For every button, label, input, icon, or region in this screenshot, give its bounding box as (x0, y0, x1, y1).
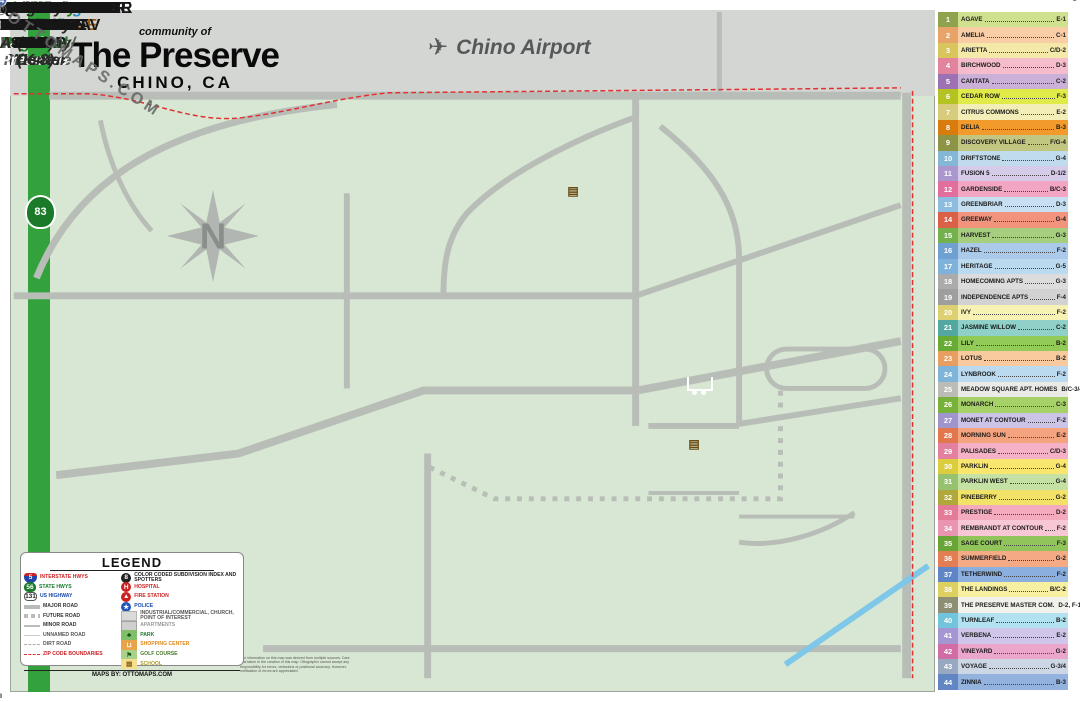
index-row: 11 FUSION 5 D-1/2 (938, 166, 1068, 181)
road-w-preserve-loop (443, 116, 637, 295)
index-row: 34 REMBRANDT AT CONTOUR F-2 (938, 520, 1068, 535)
index-leader (1008, 437, 1055, 438)
index-gridref: G-2 (1056, 494, 1068, 501)
legend-row: ▲FIRE STATION (121, 592, 240, 602)
index-row: 10 DRIFTSTONE G-4 (938, 151, 1068, 166)
index-gridref: E-1 (1056, 16, 1068, 23)
legend-row: ▤SCHOOL (121, 659, 240, 669)
index-number: 29 (938, 443, 958, 458)
legend-label: SHOPPING CENTER (140, 642, 189, 647)
legend-icon (121, 611, 137, 621)
index-number: 16 (938, 243, 958, 258)
index-number: 30 (938, 459, 958, 474)
legend-title: LEGEND (50, 555, 214, 571)
index-gridref: C/D-2 (1050, 47, 1068, 54)
index-name: DISCOVERY VILLAGE (958, 139, 1026, 146)
index-gridref: D-2, F-1 (1058, 602, 1080, 609)
index-row: 17 HERITAGE G-5 (938, 259, 1068, 274)
road-bickmore-diagonal (636, 205, 901, 296)
map-subtitle: CHINO, CA (60, 73, 290, 93)
index-number: 11 (938, 166, 958, 181)
legend-row: 8COLOR CODED SUBDIVISION INDEX AND SPOTT… (121, 573, 240, 583)
legend-icon: ⊔ (121, 640, 137, 650)
index-gridref: B/C-3/4 (1061, 386, 1080, 393)
index-name: LILY (958, 340, 974, 347)
index-row: 13 GREENBRIAR D-3 (938, 197, 1068, 212)
index-leader (994, 221, 1054, 222)
legend-icon: ♣ (121, 630, 137, 640)
index-number: 9 (938, 135, 958, 150)
map-poster: community of The Preserve CHINO, CA ✈ Ch… (0, 0, 1080, 702)
index-leader (1008, 560, 1053, 561)
index-number: 4 (938, 58, 958, 73)
index-gridref: C/D-3 (1050, 448, 1068, 455)
index-name: PRESTIGE (958, 509, 992, 516)
index-row: 2 AMELIA C-1 (938, 27, 1068, 42)
index-gridref: G-3 (1056, 232, 1068, 239)
legend-icon: ★ (121, 602, 131, 612)
index-gridref: F-2 (1057, 571, 1068, 578)
index-leader (994, 514, 1054, 515)
index-row: 35 SAGE COURT F-3 (938, 536, 1068, 551)
index-gridref: G-5 (1056, 263, 1068, 270)
book-icon: ▤ (567, 184, 578, 198)
index-number: 18 (938, 274, 958, 289)
index-name: MONET AT CONTOUR (958, 417, 1026, 424)
index-number: 8 (938, 120, 958, 135)
index-row: 5 CANTATA C-2 (938, 74, 1068, 89)
index-name: TURNLEAF (958, 617, 994, 624)
index-number: 19 (938, 289, 958, 304)
index-leader (989, 52, 1047, 53)
legend-label: GOLF COURSE (140, 652, 177, 657)
index-gridref: C-1 (1056, 32, 1068, 39)
index-row: 7 CITRUS COMMONS E-2 (938, 104, 1068, 119)
index-leader (1004, 191, 1048, 192)
shopping-cart-icon (687, 377, 713, 391)
road-market-st (648, 398, 900, 426)
index-number: 31 (938, 474, 958, 489)
index-gridref: G-3 (1056, 278, 1068, 285)
index-gridref: G-3/4 (1051, 663, 1068, 670)
index-gridref: F-2 (1057, 417, 1068, 424)
index-number: 22 (938, 336, 958, 351)
index-leader (995, 268, 1054, 269)
map-title: The Preserve (60, 38, 290, 73)
index-row: 27 MONET AT CONTOUR F-2 (938, 413, 1068, 428)
index-leader (985, 21, 1055, 22)
index-leader (1002, 160, 1053, 161)
index-row: 29 PALISADES C/D-3 (938, 443, 1068, 458)
index-name: CANTATA (958, 78, 990, 85)
legend-row: 56STATE HWYS (24, 583, 121, 593)
state-highway-83-shield: 83 (25, 195, 56, 229)
index-gridref: G-4 (1056, 478, 1068, 485)
index-leader (984, 684, 1054, 685)
legend-row: ♣PARK (121, 631, 240, 641)
index-gridref: B/C-2 (1050, 586, 1068, 593)
legend-label: MAJOR ROAD (43, 604, 78, 609)
legend-row: 5INTERSTATE HWYS (24, 573, 121, 583)
index-gridref: C-2 (1056, 324, 1068, 331)
index-gridref: G-4 (1056, 216, 1068, 223)
index-number: 12 (938, 181, 958, 196)
index-row: 20 IVY F-2 (938, 305, 1068, 320)
index-row: 30 PARKLIN G-4 (938, 459, 1068, 474)
index-gridref: D-3 (1056, 201, 1068, 208)
index-name: VOYAGE (958, 663, 987, 670)
index-gridref: E-2 (1056, 109, 1068, 116)
index-name: THE LANDINGS (958, 586, 1007, 593)
index-leader (1010, 483, 1054, 484)
legend-label: US HIGHWAY (40, 594, 72, 599)
legend-row: INDUSTRIAL/COMMERCIAL, CHURCH, POINT OF … (121, 611, 240, 621)
index-row: 12 GARDENSIDE B/C-3 (938, 181, 1068, 196)
index-name: HARVEST (958, 232, 990, 239)
grid-number: 5 (1073, 0, 1076, 3)
index-name: CITRUS COMMONS (958, 109, 1019, 116)
index-number: 5 (938, 74, 958, 89)
index-gridref: B-2 (1056, 617, 1068, 624)
index-row: 1 AGAVE E-1 (938, 12, 1068, 27)
road-future (430, 385, 781, 499)
index-name: INDEPENDENCE APTS (958, 294, 1028, 301)
index-number: 6 (938, 89, 958, 104)
index-gridref: G-2 (1056, 648, 1068, 655)
road-quality-wy (100, 120, 151, 230)
index-name: ARIETTA (958, 47, 987, 54)
index-number: 37 (938, 567, 958, 582)
index-row: 22 LILY B-2 (938, 336, 1068, 351)
index-leader (999, 499, 1054, 500)
legend-row: ⊔SHOPPING CENTER (121, 640, 240, 650)
legend-label: FIRE STATION (134, 594, 169, 599)
index-leader (989, 668, 1049, 669)
index-row: 21 JASMINE WILLOW C-2 (938, 320, 1068, 335)
index-number: 14 (938, 212, 958, 227)
legend-label: DIRT ROAD (43, 642, 71, 647)
index-gridref: F/G-4 (1050, 139, 1068, 146)
index-leader (1003, 67, 1054, 68)
legend-left-column: 5INTERSTATE HWYS56STATE HWYS131US HIGHWA… (24, 573, 121, 669)
maps-by-credit: MAPS BY: OTTOMAPS.COM (24, 670, 240, 678)
index-row: 44 ZINNIA B-3 (938, 674, 1068, 689)
index-row: 8 DELIA B-3 (938, 120, 1068, 135)
index-gridref: C-2 (1056, 78, 1068, 85)
index-gridref: F-2 (1057, 525, 1068, 532)
index-name: TETHERWIND (958, 571, 1002, 578)
index-gridref: B-2 (1056, 340, 1068, 347)
index-row: 41 VERBENA E-2 (938, 628, 1068, 643)
index-leader (998, 376, 1055, 377)
legend-icon: ▤ (121, 659, 137, 669)
legend-right-column: 8COLOR CODED SUBDIVISION INDEX AND SPOTT… (121, 573, 240, 669)
index-row: 15 HARVEST G-3 (938, 228, 1068, 243)
map-title-block: community of The Preserve CHINO, CA (60, 26, 290, 93)
index-row: 40 TURNLEAF B-2 (938, 613, 1068, 628)
index-number: 41 (938, 628, 958, 643)
index-row: 19 INDEPENDENCE APTS F-4 (938, 289, 1068, 304)
index-row: 31 PARKLIN WEST G-4 (938, 474, 1068, 489)
index-number: 42 (938, 644, 958, 659)
index-row: 18 HOMECOMING APTS G-3 (938, 274, 1068, 289)
index-number: 34 (938, 520, 958, 535)
index-number: 40 (938, 613, 958, 628)
index-leader (984, 360, 1054, 361)
index-number: 3 (938, 43, 958, 58)
index-number: 44 (938, 674, 958, 689)
airplane-icon: ✈ (428, 33, 448, 62)
legend-label: SCHOOL (140, 662, 162, 667)
index-row: 39 THE PRESERVE MASTER COM. D-2, F-1 (938, 597, 1068, 612)
index-gridref: F-3 (1057, 93, 1068, 100)
index-leader (992, 83, 1054, 84)
index-leader (1045, 530, 1055, 531)
index-name: HOMECOMING APTS (958, 278, 1023, 285)
legend-row: FUTURE ROAD (24, 611, 121, 621)
index-gridref: D-1/2 (1051, 170, 1068, 177)
compass-north-letter: N (200, 215, 226, 256)
index-leader (1021, 114, 1055, 115)
legend-icon (121, 621, 137, 631)
index-number: 28 (938, 428, 958, 443)
index-name: MEADOW SQUARE APT. HOMES (958, 386, 1057, 393)
legend-label: ZIP CODE BOUNDARIES (43, 652, 103, 657)
legend-icon: ▲ (121, 592, 131, 602)
index-number: 24 (938, 366, 958, 381)
legend-icon (24, 654, 40, 655)
index-row: 4 BIRCHWOOD D-3 (938, 58, 1068, 73)
index-number: 2 (938, 27, 958, 42)
index-row: 25 MEADOW SQUARE APT. HOMES B/C-3/4 (938, 382, 1068, 397)
index-leader (1028, 144, 1049, 145)
index-row: 33 PRESTIGE D-2 (938, 505, 1068, 520)
index-row: 3 ARIETTA C/D-2 (938, 43, 1068, 58)
index-row: 32 PINEBERRY G-2 (938, 490, 1068, 505)
legend-icon: ⚑ (121, 650, 137, 660)
index-row: 36 SUMMERFIELD G-2 (938, 551, 1068, 566)
index-number: 23 (938, 351, 958, 366)
index-number: 25 (938, 382, 958, 397)
index-gridref: D-2 (1056, 509, 1068, 516)
index-leader (1004, 576, 1055, 577)
index-gridref: F-4 (1057, 294, 1068, 301)
index-leader (993, 637, 1054, 638)
index-name: AMELIA (958, 32, 985, 39)
index-name: REMBRANDT AT CONTOUR (958, 525, 1043, 532)
index-name: HAZEL (958, 247, 982, 254)
legend-icon (24, 635, 40, 636)
index-name: PALISADES (958, 448, 996, 455)
index-number: 13 (938, 197, 958, 212)
index-name: PARKLIN (958, 463, 988, 470)
index-name: DRIFTSTONE (958, 155, 1000, 162)
compass-rose: N (165, 188, 261, 284)
index-leader (1004, 545, 1054, 546)
index-leader (998, 453, 1048, 454)
index-name: GREEWAY (958, 216, 992, 223)
index-number: 21 (938, 320, 958, 335)
grid-letter: H (0, 694, 2, 700)
index-row: 38 THE LANDINGS B/C-2 (938, 582, 1068, 597)
index-leader (976, 345, 1054, 346)
index-leader (996, 622, 1054, 623)
map-label: TAMARACK ST (0, 0, 91, 35)
legend-label: PARK (140, 633, 154, 638)
index-row: 14 GREEWAY G-4 (938, 212, 1068, 227)
index-name: HERITAGE (958, 263, 993, 270)
index-gridref: B-2 (1056, 355, 1068, 362)
legend-row: MINOR ROAD (24, 621, 121, 631)
legend-row: UNNAMED ROAD (24, 631, 121, 641)
subdivision-index: 1 AGAVE E-1 2 AMELIA C-1 3 ARIETTA C/D-2… (938, 12, 1068, 690)
legend-icon: H (121, 582, 131, 592)
index-gridref: F-2 (1057, 371, 1068, 378)
index-gridref: F-3 (1057, 540, 1068, 547)
index-row: 9 DISCOVERY VILLAGE F/G-4 (938, 135, 1068, 150)
index-name: MONARCH (958, 401, 993, 408)
index-gridref: F-2 (1057, 247, 1068, 254)
index-leader (994, 653, 1053, 654)
index-number: 27 (938, 413, 958, 428)
index-leader (1018, 329, 1054, 330)
index-name: LOTUS (958, 355, 982, 362)
index-name: GREENBRIAR (958, 201, 1003, 208)
index-number: 15 (938, 228, 958, 243)
legend-icon (24, 614, 40, 618)
legend-row: APARTMENTS (121, 621, 240, 631)
index-name: LYNBROOK (958, 371, 996, 378)
index-leader (1030, 299, 1055, 300)
index-name: FUSION 5 (958, 170, 990, 177)
index-gridref: B/C-3 (1050, 186, 1068, 193)
index-leader (992, 237, 1053, 238)
index-name: THE PRESERVE MASTER COM. (958, 602, 1054, 609)
index-name: SAGE COURT (958, 540, 1002, 547)
legend: LEGEND 5INTERSTATE HWYS56STATE HWYS131US… (20, 552, 244, 666)
airport-label: ✈ Chino Airport (428, 33, 591, 62)
airport-name: Chino Airport (456, 36, 591, 60)
legend-row: ZIP CODE BOUNDARIES (24, 650, 121, 660)
index-number: 33 (938, 505, 958, 520)
index-leader (1025, 283, 1054, 284)
index-number: 36 (938, 551, 958, 566)
index-gridref: F-2 (1057, 309, 1068, 316)
index-number: 35 (938, 536, 958, 551)
index-number: 1 (938, 12, 958, 27)
index-leader (982, 129, 1054, 130)
index-gridref: E-2 (1056, 432, 1068, 439)
index-row: 24 LYNBROOK F-2 (938, 366, 1068, 381)
index-leader (1028, 422, 1055, 423)
index-name: PARKLIN WEST (958, 478, 1008, 485)
index-name: IVY (958, 309, 971, 316)
disclaimer-text: The information on this map was derived … (240, 656, 350, 674)
legend-icon (24, 625, 40, 627)
index-leader (1009, 591, 1047, 592)
index-name: JASMINE WILLOW (958, 324, 1016, 331)
legend-label: APARTMENTS (140, 623, 175, 628)
index-name: CEDAR ROW (958, 93, 1000, 100)
index-leader (1002, 98, 1055, 99)
index-row: 28 MORNING SUN E-2 (938, 428, 1068, 443)
index-gridref: B-3 (1056, 679, 1068, 686)
index-leader (973, 314, 1055, 315)
index-number: 26 (938, 397, 958, 412)
index-name: AGAVE (958, 16, 983, 23)
index-gridref: G-4 (1056, 463, 1068, 470)
legend-row: DIRT ROAD (24, 640, 121, 650)
index-gridref: E-2 (1056, 632, 1068, 639)
index-number: 38 (938, 582, 958, 597)
index-row: 43 VOYAGE G-3/4 (938, 659, 1068, 674)
legend-row: MAJOR ROAD (24, 602, 121, 612)
index-gridref: G-2 (1056, 555, 1068, 562)
legend-icon (24, 605, 40, 609)
index-name: VERBENA (958, 632, 991, 639)
index-row: 26 MONARCH C-3 (938, 397, 1068, 412)
legend-label: INDUSTRIAL/COMMERCIAL, CHURCH, POINT OF … (140, 611, 240, 621)
index-number: 10 (938, 151, 958, 166)
index-name: SUMMERFIELD (958, 555, 1006, 562)
index-gridref: B-3 (1056, 124, 1068, 131)
index-number: 32 (938, 490, 958, 505)
legend-icon: 8 (121, 573, 131, 583)
index-row: 6 CEDAR ROW F-3 (938, 89, 1068, 104)
index-number: 20 (938, 305, 958, 320)
legend-row: ⚑GOLF COURSE (121, 650, 240, 660)
index-leader (990, 468, 1054, 469)
legend-icon (24, 644, 40, 645)
index-leader (1005, 206, 1054, 207)
index-name: DELIA (958, 124, 980, 131)
index-row: 16 HAZEL F-2 (938, 243, 1068, 258)
legend-row: 131US HIGHWAY (24, 592, 121, 602)
index-name: VINEYARD (958, 648, 992, 655)
index-name: GARDENSIDE (958, 186, 1002, 193)
index-leader (992, 175, 1049, 176)
legend-label: INTERSTATE HWYS (40, 575, 88, 580)
legend-label: POLICE (134, 604, 153, 609)
legend-icon: 131 (24, 592, 37, 601)
index-number: 43 (938, 659, 958, 674)
legend-label: HOSPITAL (134, 585, 159, 590)
legend-label: COLOR CODED SUBDIVISION INDEX AND SPOTTE… (134, 573, 240, 583)
index-number: 17 (938, 259, 958, 274)
index-leader (984, 252, 1055, 253)
legend-label: MINOR ROAD (43, 623, 76, 628)
index-number: 7 (938, 104, 958, 119)
book-icon: ▤ (688, 437, 699, 451)
index-gridref: C-3 (1056, 401, 1068, 408)
legend-label: UNNAMED ROAD (43, 633, 85, 638)
legend-label: FUTURE ROAD (43, 614, 80, 619)
legend-row: HHOSPITAL (121, 583, 240, 593)
index-gridref: D-3 (1056, 62, 1068, 69)
index-name: BIRCHWOOD (958, 62, 1001, 69)
index-row: 42 VINEYARD G-2 (938, 644, 1068, 659)
index-gridref: G-4 (1056, 155, 1068, 162)
index-number: 39 (938, 597, 958, 612)
legend-icon: 56 (24, 582, 36, 592)
index-leader (995, 406, 1054, 407)
index-name: ZINNIA (958, 679, 982, 686)
road-pine-av (56, 341, 901, 475)
index-name: PINEBERRY (958, 494, 997, 501)
index-leader (987, 37, 1054, 38)
index-name: MORNING SUN (958, 432, 1006, 439)
index-row: 23 LOTUS B-2 (938, 351, 1068, 366)
